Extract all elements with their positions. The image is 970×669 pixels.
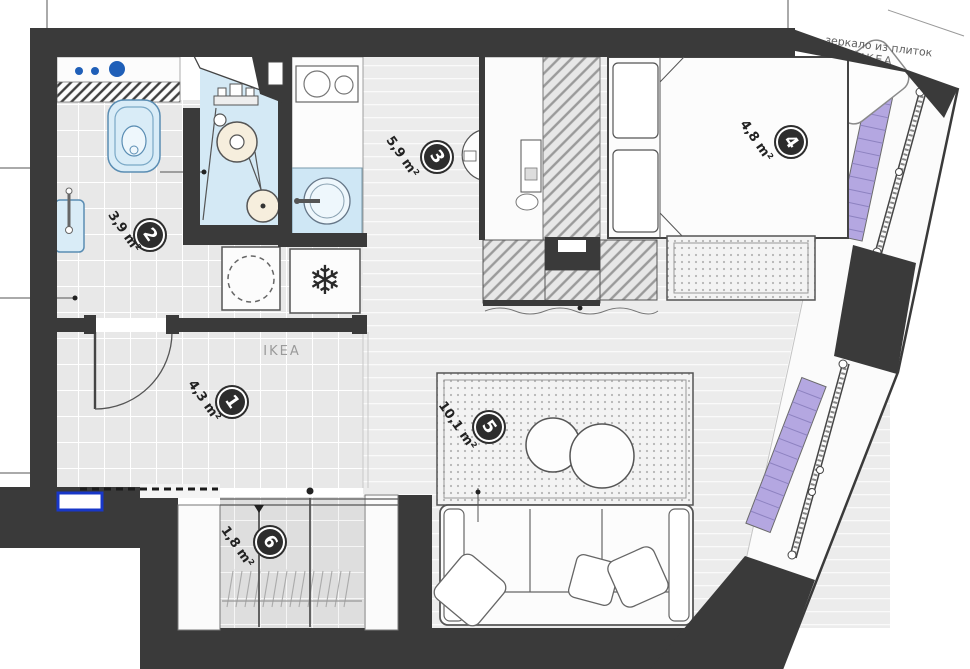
floor-plan: зеркало из плиток IKEA — [0, 0, 970, 669]
closet-left-column — [178, 505, 220, 630]
room-badge-6: 6 — [253, 525, 287, 559]
room-badge-3: 3 — [420, 140, 454, 174]
storage-notch — [558, 240, 586, 252]
shower-handle-block — [268, 62, 283, 85]
wall-kitchen-desk — [479, 57, 485, 240]
track-marker-dot-icon — [307, 488, 314, 495]
wall-top-right-slant — [790, 28, 958, 118]
doormat-icon — [58, 493, 102, 510]
threshold-strip — [140, 484, 220, 498]
room-badge-4: 4 — [774, 125, 808, 159]
walls-layer — [0, 0, 970, 669]
opening-jamb — [352, 315, 367, 334]
wall-counter-stub — [280, 233, 367, 247]
hall-brand-label: IKEA — [252, 344, 312, 359]
wall-bottom — [140, 628, 745, 669]
wall-hall-right — [172, 318, 365, 332]
wall-bottom-right-slant — [650, 556, 815, 669]
wall-closet-right — [398, 495, 432, 630]
wall-left — [30, 28, 57, 490]
snowflake-icon: ❄ — [291, 251, 359, 311]
closet-right-column — [365, 495, 398, 630]
door-jamb — [166, 315, 179, 334]
room-badge-5: 5 — [472, 410, 506, 444]
track-marker-icon — [254, 505, 264, 513]
wall-between-windows — [834, 245, 916, 374]
shower-wall-left — [183, 108, 200, 245]
shower-wall-bottom — [183, 225, 292, 245]
wall-top — [30, 28, 795, 57]
door-jamb — [84, 315, 96, 334]
walls — [0, 28, 958, 669]
storage-base — [483, 300, 600, 306]
